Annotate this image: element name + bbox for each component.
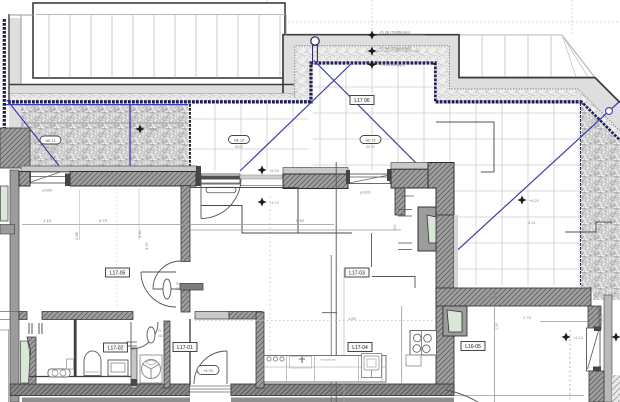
svg-text:N4: N4 bbox=[176, 282, 180, 286]
svg-text:1.75: 1.75 bbox=[600, 315, 604, 322]
svg-text:L17-01: L17-01 bbox=[177, 345, 193, 351]
svg-text:+5.05: +5.05 bbox=[147, 127, 158, 132]
svg-text:pm300: pm300 bbox=[42, 189, 52, 193]
svg-text:5.90: 5.90 bbox=[296, 218, 305, 223]
svg-text:3.41: 3.41 bbox=[528, 220, 537, 225]
svg-text:pm303: pm303 bbox=[360, 191, 370, 195]
svg-text:L17-04: L17-04 bbox=[352, 345, 368, 351]
svg-text:+4.70: +4.70 bbox=[203, 369, 213, 373]
svg-text:85.00: 85.00 bbox=[46, 146, 55, 150]
svg-text:85.00: 85.00 bbox=[235, 145, 244, 149]
svg-text:mosogatógép: mosogatógép bbox=[320, 358, 336, 362]
svg-text:2100: 2100 bbox=[158, 334, 165, 338]
svg-text:+5.20 (lefolyó): +5.20 (lefolyó) bbox=[380, 62, 406, 67]
svg-text:600: 600 bbox=[393, 224, 397, 230]
svg-text:+5.21: +5.21 bbox=[529, 198, 540, 203]
svg-text:L17 06: L17 06 bbox=[354, 98, 370, 104]
svg-text:+4.13: +4.13 bbox=[573, 335, 584, 340]
svg-text:85.00: 85.00 bbox=[366, 145, 375, 149]
svg-text:3.90: 3.90 bbox=[137, 229, 142, 238]
svg-text:1.15: 1.15 bbox=[43, 218, 52, 223]
svg-text:NE 13: NE 13 bbox=[46, 139, 56, 143]
svg-text:3.37: 3.37 bbox=[144, 241, 149, 250]
svg-text:NE 14: NE 14 bbox=[234, 139, 244, 143]
svg-text:+5.20: +5.20 bbox=[269, 168, 280, 173]
svg-text:L17-05: L17-05 bbox=[110, 270, 126, 276]
svg-text:L17-02: L17-02 bbox=[108, 345, 124, 351]
svg-text:4.85: 4.85 bbox=[348, 316, 357, 321]
svg-text:2.96: 2.96 bbox=[74, 231, 79, 240]
svg-text:L16-05: L16-05 bbox=[465, 344, 481, 350]
svg-text:3.50: 3.50 bbox=[495, 323, 499, 330]
svg-text:+5.44 (Szigetelés): +5.44 (Szigetelés) bbox=[379, 46, 412, 51]
svg-text:PL: PL bbox=[158, 329, 162, 333]
svg-text:2100: 2100 bbox=[176, 287, 183, 291]
svg-text:+5.38 (Tetőfedés): +5.38 (Tetőfedés) bbox=[379, 30, 411, 35]
svg-text:L17-03: L17-03 bbox=[349, 270, 365, 276]
svg-text:NE 15: NE 15 bbox=[366, 139, 376, 143]
svg-text:2.75: 2.75 bbox=[523, 315, 532, 320]
svg-text:5.70: 5.70 bbox=[99, 218, 108, 223]
svg-text:+4.72: +4.72 bbox=[269, 200, 280, 205]
